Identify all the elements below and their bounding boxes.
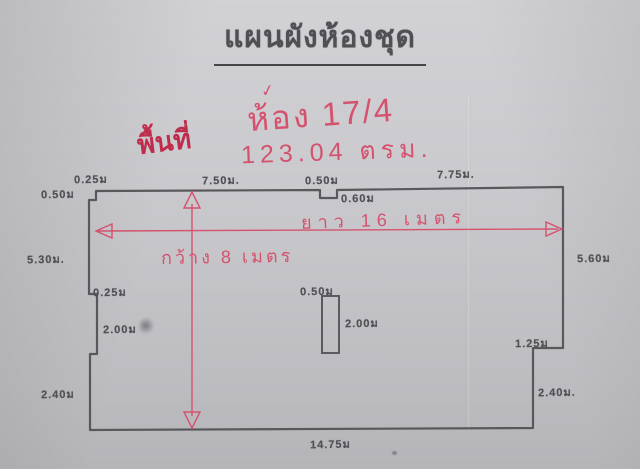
length-annotation: ยาว 16 เมตร xyxy=(301,202,468,237)
dim-label-top-7-75: 7.75ม. xyxy=(437,165,475,184)
area-value-annotation: 123.04 ตรม. xyxy=(240,129,433,176)
dim-label-top-7-50: 7.50ม. xyxy=(202,171,240,190)
dim-label-top-left-0-50: 0.50ม xyxy=(41,185,75,204)
dim-label-left-2-00: 2.00ม xyxy=(103,320,137,339)
pillar-rect xyxy=(322,296,339,353)
dim-label-left-5-30: 5.30ม. xyxy=(27,250,65,269)
page-title: แผนผังห้องชุด xyxy=(214,14,426,66)
width-annotation: กว้าง 8 เมตร xyxy=(161,241,294,272)
dim-label-left-2-40: 2.40ม xyxy=(41,385,75,404)
dim-label-top-0-50: 0.50ม xyxy=(305,171,339,190)
dim-label-pillar-0-50: 0.50ม xyxy=(300,282,334,301)
dim-label-top-left-0-25: 0.25ม xyxy=(74,170,108,189)
scanned-floor-plan-page: แผนผังห้องชุด ✓ ห้อง 17/4 พื้นที่ 123.04… xyxy=(0,0,640,469)
dim-label-right-step-1-25: 1.25ม xyxy=(515,334,549,353)
dim-label-left-step-0-25: 0.25ม xyxy=(93,283,127,302)
dim-label-pillar-2-00: 2.00ม xyxy=(345,314,379,333)
dim-label-right-2-40: 2.40ม. xyxy=(538,383,576,402)
dim-label-right-5-60: 5.60ม xyxy=(577,249,611,268)
width-dimension-arrow xyxy=(184,192,200,428)
dim-label-bottom-14-75: 14.75ม xyxy=(310,435,351,454)
area-label-annotation: พื้นที่ xyxy=(135,117,194,166)
dim-label-notch-0-60: 0.60ม xyxy=(341,189,375,208)
